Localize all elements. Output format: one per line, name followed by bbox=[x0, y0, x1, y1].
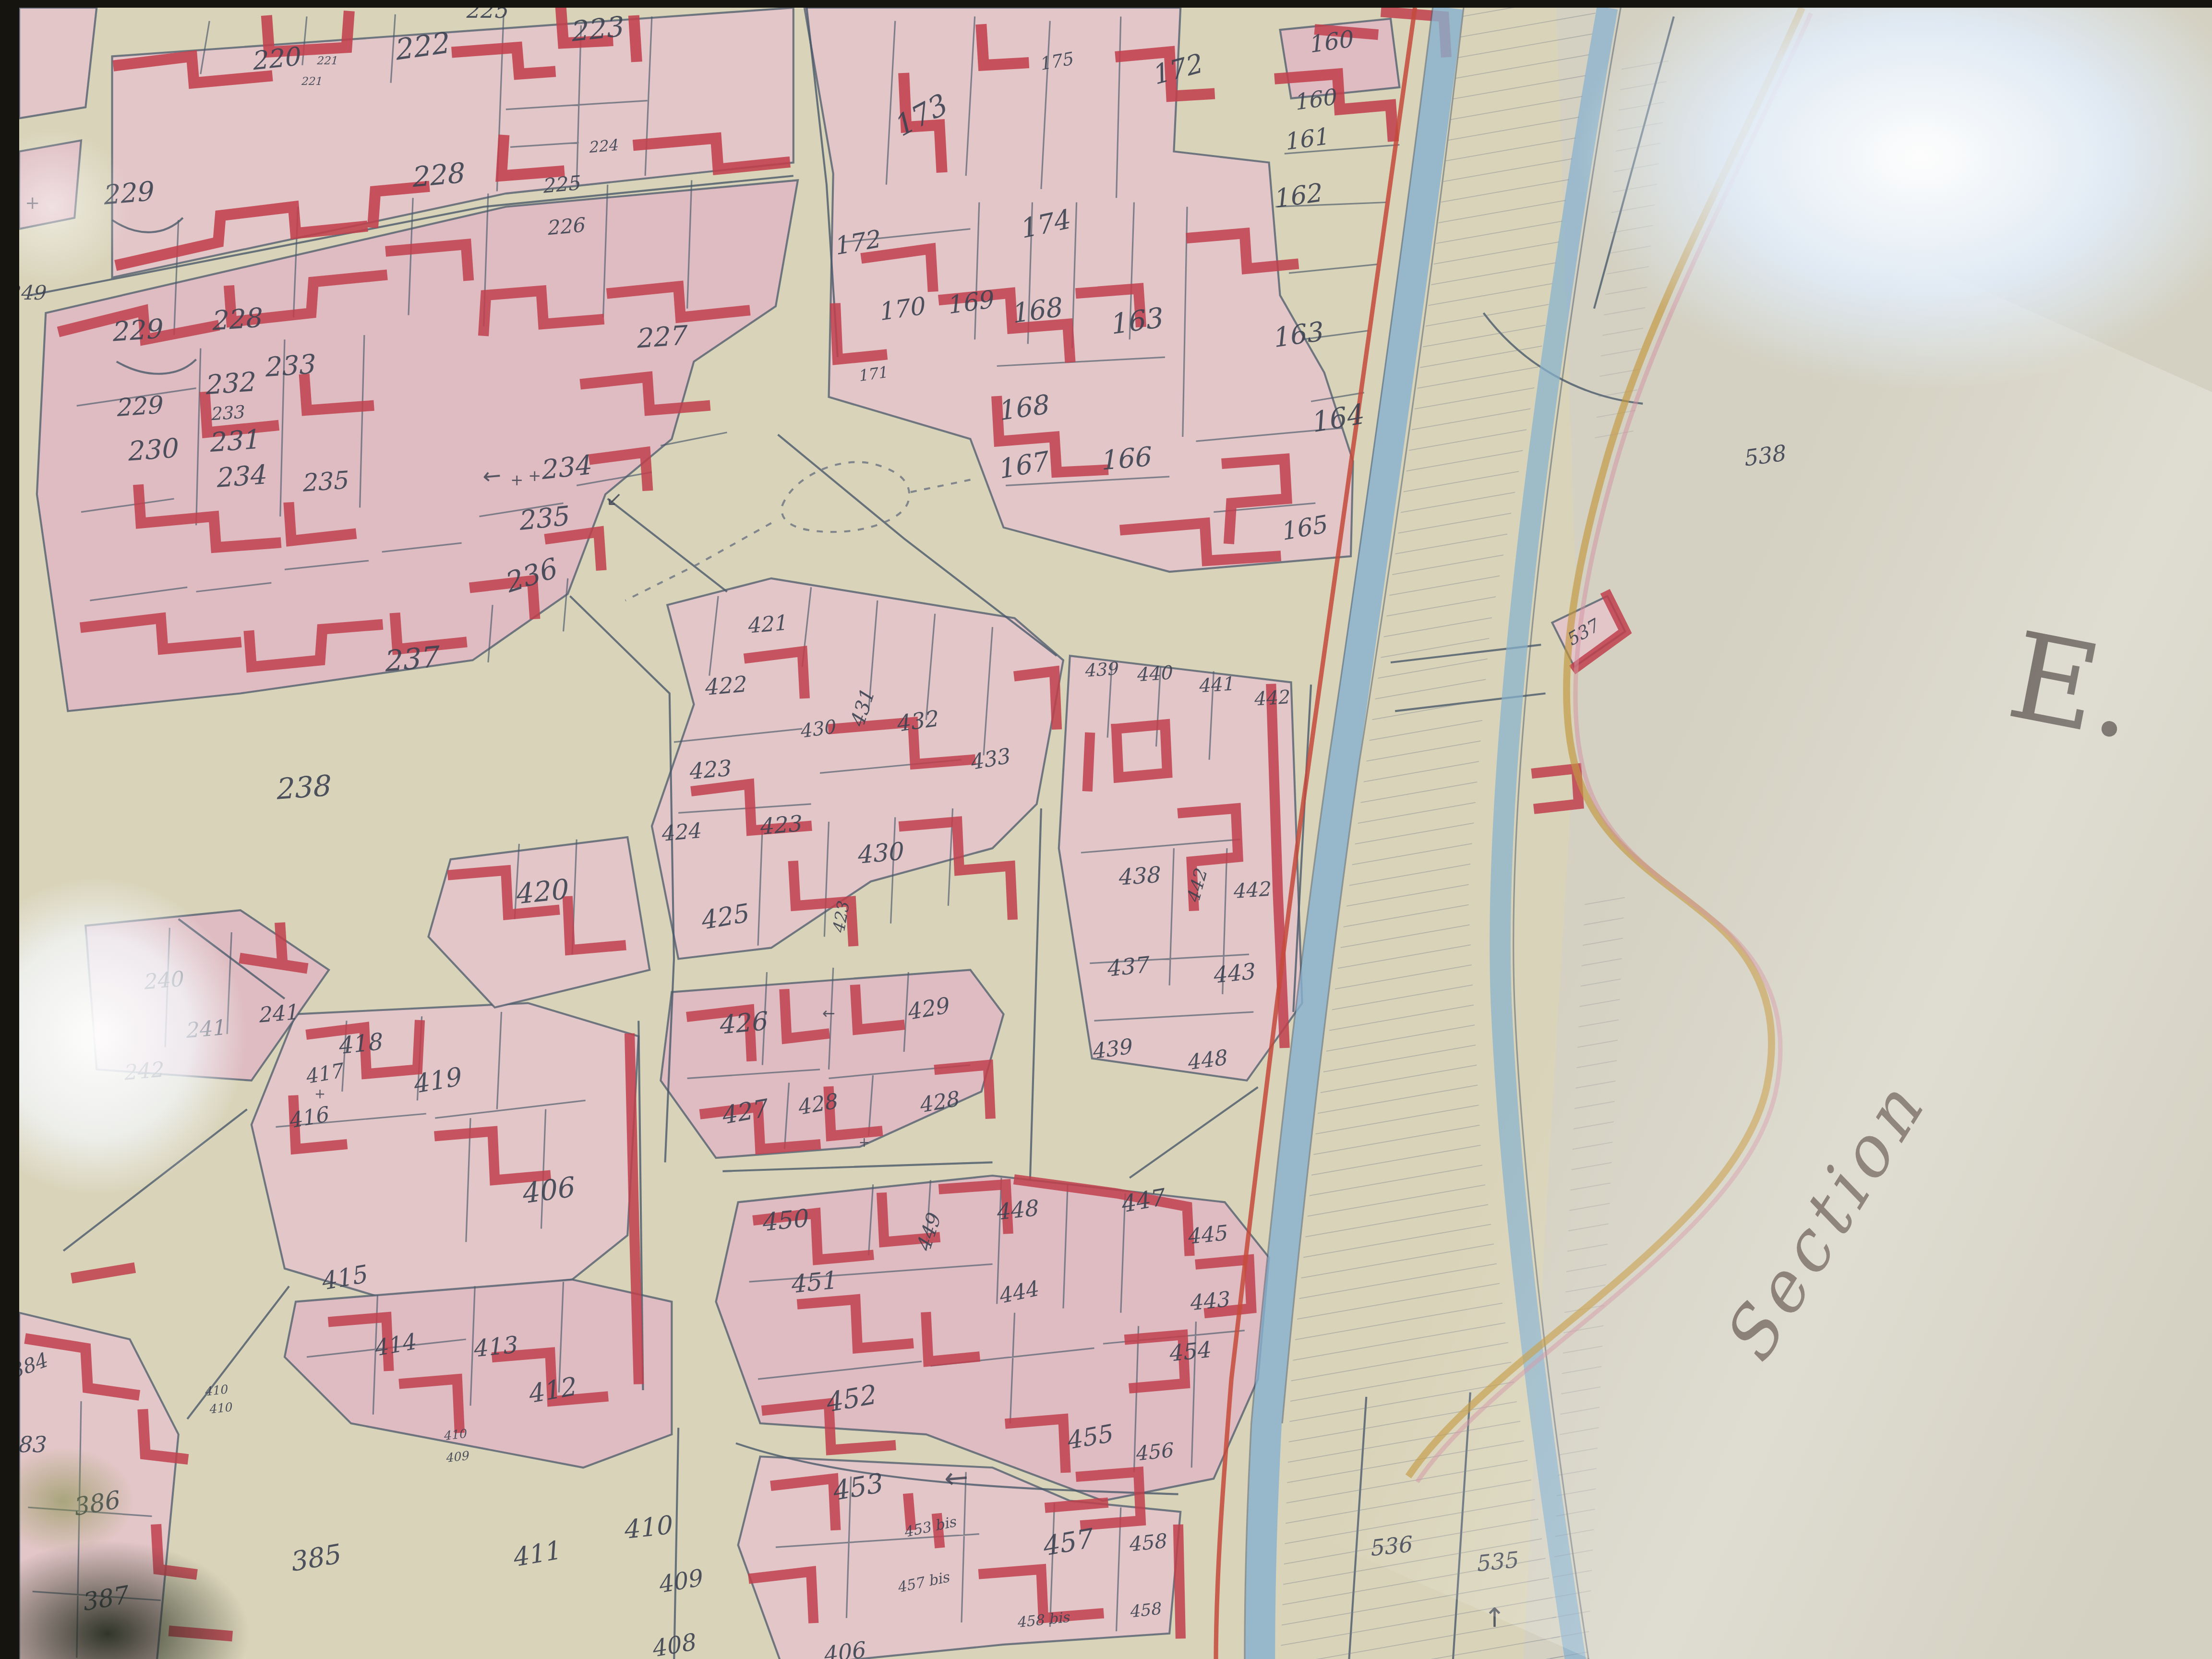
parcel-number-228: 228 bbox=[209, 302, 264, 336]
parcel-number-226: 226 bbox=[545, 213, 587, 240]
parcel-number-241: 241 bbox=[256, 999, 299, 1027]
parcel-number-166: 166 bbox=[1098, 441, 1154, 476]
parcel-number-448: 448 bbox=[994, 1195, 1040, 1225]
parcel-number-535: 535 bbox=[1474, 1547, 1520, 1577]
parcel-number-439: 439 bbox=[1083, 658, 1120, 681]
parcel-number-439: 439 bbox=[1089, 1034, 1134, 1064]
survey-mark: + bbox=[510, 471, 523, 489]
parcel-number-242: 242 bbox=[121, 1057, 165, 1085]
survey-mark: ← bbox=[943, 1460, 970, 1495]
parcel-number-224: 224 bbox=[587, 136, 618, 156]
parcel-number-430: 430 bbox=[854, 837, 905, 869]
parcel-number-234: 234 bbox=[214, 459, 267, 493]
parcel-number-220: 220 bbox=[249, 41, 302, 76]
parcel-number-454: 454 bbox=[1166, 1336, 1211, 1367]
cadastral-map-photo: Section E. 22022122122222522322422822522… bbox=[19, 8, 2212, 1659]
parcel-number-160: 160 bbox=[1292, 84, 1339, 115]
parcel-number-235: 235 bbox=[516, 500, 570, 536]
parcel-number-230: 230 bbox=[125, 433, 180, 467]
parcel-number-536: 536 bbox=[1368, 1531, 1414, 1561]
parcel-number-231: 231 bbox=[207, 424, 260, 458]
parcel-number-221: 221 bbox=[301, 75, 322, 87]
parcel-number-162: 162 bbox=[1271, 178, 1324, 214]
parcel-number-410: 410 bbox=[442, 1426, 468, 1443]
parcel-number-430: 430 bbox=[797, 716, 837, 742]
sketch-dashed bbox=[625, 462, 975, 601]
survey-mark: + bbox=[314, 1086, 325, 1102]
parcel-number-229: 229 bbox=[114, 390, 164, 422]
parcel-number-442: 442 bbox=[1231, 878, 1272, 903]
parcel-number-168: 168 bbox=[995, 389, 1051, 427]
survey-mark: ↙ bbox=[606, 487, 623, 510]
parcel-number-451: 451 bbox=[788, 1266, 837, 1299]
parcel-number-420: 420 bbox=[512, 873, 570, 911]
parcel-number-223: 223 bbox=[567, 11, 625, 48]
parcel-number-458: 458 bbox=[1127, 1529, 1168, 1556]
parcel-number-424: 424 bbox=[659, 818, 702, 846]
survey-mark: ← bbox=[481, 462, 502, 489]
parcel-number-450: 450 bbox=[759, 1203, 810, 1237]
parcel-number-413: 413 bbox=[470, 1331, 519, 1362]
parcel-number-171: 171 bbox=[856, 363, 888, 385]
survey-mark: + bbox=[528, 467, 541, 485]
parcel-number-445: 445 bbox=[1185, 1220, 1229, 1249]
parcel-number-163: 163 bbox=[1269, 316, 1325, 354]
parcel-number-441: 441 bbox=[1197, 673, 1234, 697]
parcel-number-442: 442 bbox=[1252, 686, 1290, 710]
parcel-number-440: 440 bbox=[1135, 661, 1174, 685]
parcel-number-438: 438 bbox=[1116, 862, 1162, 890]
parcel-number-237: 237 bbox=[381, 639, 442, 678]
parcel-number-410: 410 bbox=[208, 1399, 233, 1416]
survey-mark: ← bbox=[822, 1004, 835, 1022]
parcel-number-409: 409 bbox=[445, 1448, 470, 1465]
parcel-number-221: 221 bbox=[316, 54, 337, 67]
section-letter-label: E. bbox=[1998, 606, 2148, 766]
parcel-number-458: 458 bbox=[1128, 1599, 1163, 1621]
survey-mark: ↑ bbox=[1483, 1602, 1505, 1633]
parcel-number-421: 421 bbox=[745, 610, 787, 638]
parcel-number-233: 233 bbox=[209, 402, 246, 425]
parcel-number-225: 225 bbox=[541, 171, 582, 198]
parcel-number-426: 426 bbox=[716, 1006, 769, 1040]
parcel-number-232: 232 bbox=[203, 366, 257, 400]
parcel-number-411: 411 bbox=[509, 1535, 562, 1573]
parcel-number-410: 410 bbox=[204, 1382, 229, 1399]
parcel-number-169: 169 bbox=[944, 285, 996, 319]
parcel-number-423: 423 bbox=[686, 755, 733, 785]
parcel-number-418: 418 bbox=[336, 1028, 385, 1059]
parcel-number-409: 409 bbox=[655, 1564, 706, 1599]
parcel-number-228: 228 bbox=[409, 157, 467, 194]
parcel-number-437: 437 bbox=[1104, 951, 1152, 982]
parcel-number-443: 443 bbox=[1187, 1286, 1231, 1315]
parcel-number-233: 233 bbox=[262, 349, 317, 383]
parcel-number-423: 423 bbox=[757, 810, 804, 840]
parcel-number-229: 229 bbox=[109, 313, 165, 348]
parcel-number-456: 456 bbox=[1133, 1439, 1175, 1466]
parcel-number-227: 227 bbox=[634, 320, 690, 354]
parcel-number-385: 385 bbox=[287, 1539, 343, 1578]
parcel-number-443: 443 bbox=[1211, 958, 1257, 988]
parcel-number-225: 225 bbox=[465, 8, 508, 23]
parcel-number-410: 410 bbox=[621, 1510, 674, 1545]
parcel-number-241: 241 bbox=[183, 1015, 226, 1043]
parcel-number-408: 408 bbox=[649, 1628, 699, 1659]
map-canvas: Section E. 22022122122222522322422822522… bbox=[19, 8, 2212, 1659]
survey-mark: + bbox=[859, 1134, 870, 1150]
survey-mark: + bbox=[25, 192, 40, 213]
parcel-number-249: 249 bbox=[19, 281, 47, 304]
parcel-number-234: 234 bbox=[538, 450, 591, 486]
parcel-number-235: 235 bbox=[300, 466, 349, 497]
parcel-number-383: 383 bbox=[19, 1431, 47, 1457]
parcel-number-229: 229 bbox=[100, 176, 156, 211]
parcel-number-422: 422 bbox=[702, 671, 747, 701]
parcel-number-238: 238 bbox=[273, 769, 333, 806]
parcel-number-240: 240 bbox=[141, 966, 185, 994]
